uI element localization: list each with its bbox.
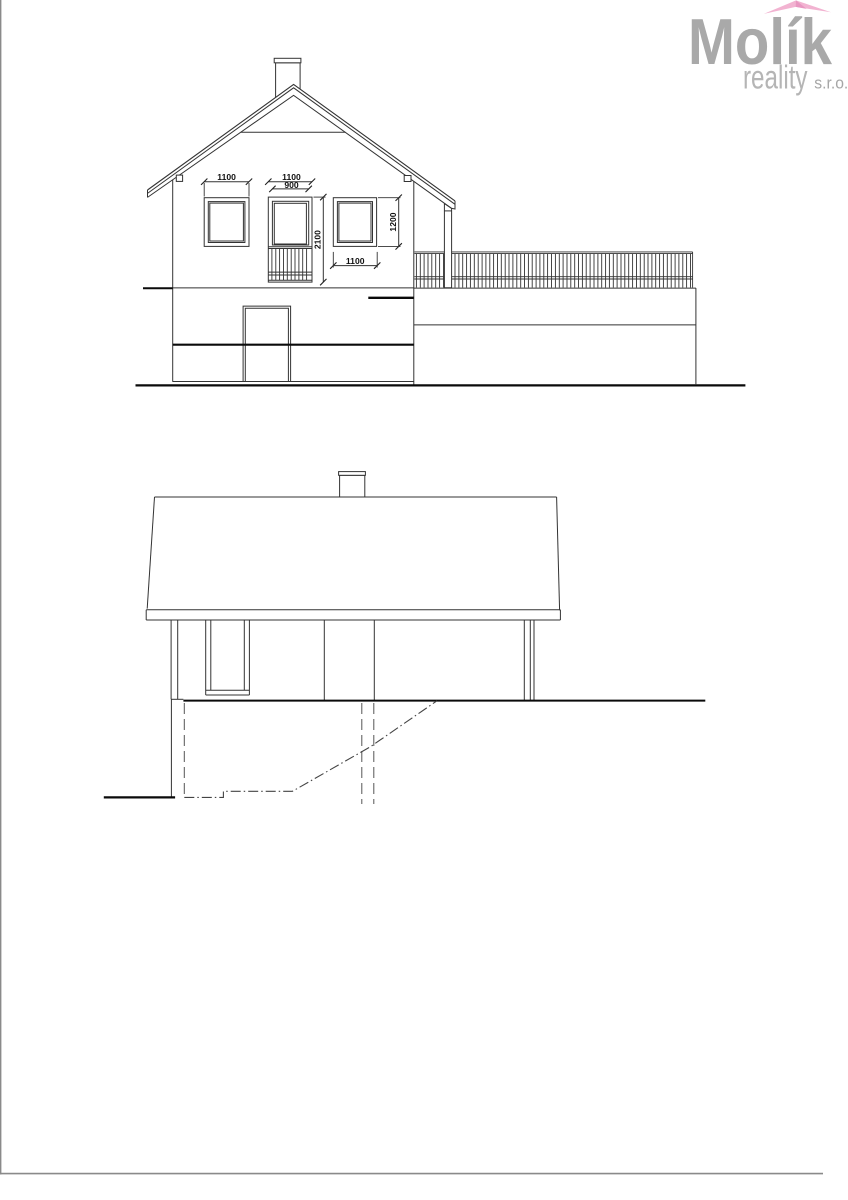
svg-text:900: 900	[284, 180, 299, 190]
svg-text:reality: reality	[743, 59, 808, 96]
svg-text:2100: 2100	[313, 230, 323, 249]
svg-text:1200: 1200	[388, 212, 398, 231]
svg-text:1100: 1100	[346, 256, 365, 266]
svg-text:1100: 1100	[217, 172, 236, 182]
svg-text:s.r.o.: s.r.o.	[814, 74, 848, 93]
